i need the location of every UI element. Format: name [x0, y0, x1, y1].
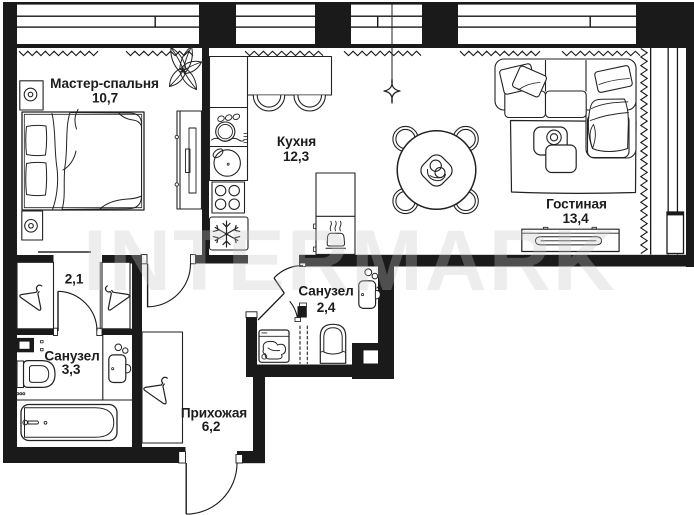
svg-text:Кухня: Кухня	[277, 134, 316, 149]
svg-text:Гостиная: Гостиная	[546, 197, 607, 212]
svg-text:6,2: 6,2	[202, 419, 221, 434]
svg-text:12,3: 12,3	[283, 149, 310, 164]
svg-text:2,1: 2,1	[65, 272, 84, 287]
svg-text:Мастер-спальня: Мастер-спальня	[50, 76, 159, 91]
svg-text:3,3: 3,3	[62, 362, 81, 377]
svg-text:2,4: 2,4	[317, 300, 336, 315]
svg-text:13,4: 13,4	[562, 211, 589, 226]
svg-text:Санузел: Санузел	[298, 284, 353, 299]
svg-text:10,7: 10,7	[92, 91, 118, 106]
